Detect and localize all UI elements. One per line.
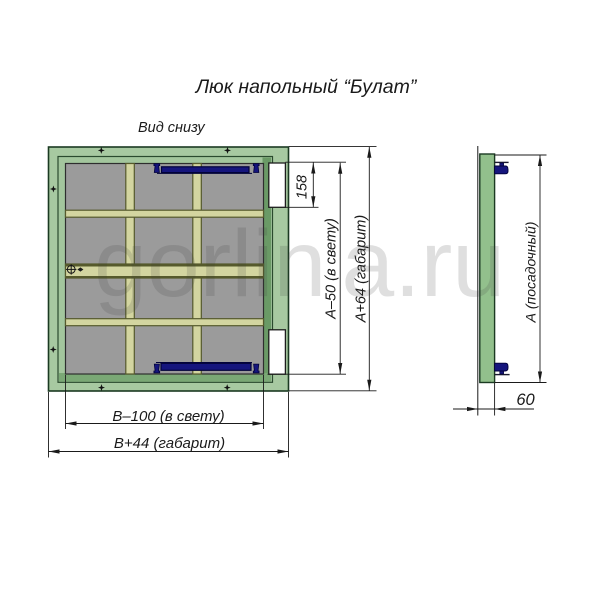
svg-text:В–100 (в свету): В–100 (в свету) <box>112 408 224 425</box>
svg-text:В+44 (габарит): В+44 (габарит) <box>114 435 225 452</box>
svg-text:gorlina.ru: gorlina.ru <box>94 211 505 317</box>
svg-text:60: 60 <box>516 391 535 409</box>
svg-text:А (посадочный): А (посадочный) <box>523 222 539 324</box>
svg-text:Вид снизу: Вид снизу <box>138 120 205 136</box>
svg-text:158: 158 <box>295 175 311 199</box>
svg-text:Люк напольный “Булат”: Люк напольный “Булат” <box>194 76 418 98</box>
